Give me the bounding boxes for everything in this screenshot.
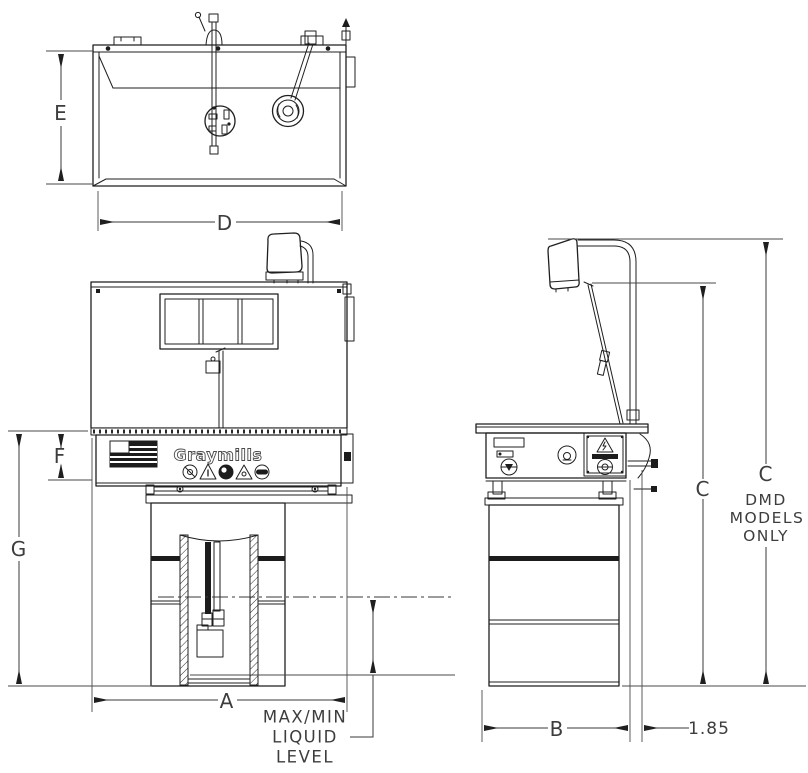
lamp-head-front — [266, 233, 313, 283]
us-flag-label — [110, 441, 157, 467]
dmd-note-line3: ONLY — [743, 527, 789, 545]
dimension-e: E — [46, 51, 93, 184]
lamp-head-side — [548, 239, 579, 292]
gooseneck-arm — [578, 240, 639, 424]
pump — [197, 542, 224, 657]
raised-nozzle — [584, 282, 623, 424]
rim-latch — [114, 37, 141, 45]
dimension-d: D — [98, 191, 342, 235]
front-panel: Graymills — [96, 435, 341, 486]
dim-label-g: G — [11, 537, 28, 561]
dim-label-b: B — [550, 717, 565, 741]
dimension-c: C — [696, 286, 711, 684]
drain-strainer — [205, 106, 235, 136]
brand-logo: Graymills — [174, 446, 263, 465]
dim-label-offset: 1.85 — [688, 719, 730, 739]
side-view: C C DMD MODELS ONLY B 1.85 — [476, 239, 806, 742]
dim-label-c-dmd: C — [759, 462, 774, 486]
dmd-note-line1: DMD — [745, 491, 787, 509]
liquid-note-line1: MAX/MIN — [263, 708, 347, 727]
liquid-level-dimension: MAX/MIN LIQUID LEVEL — [263, 600, 373, 767]
dim-label-c: C — [696, 477, 711, 501]
top-view: E D — [46, 12, 355, 235]
dimension-g: G — [8, 431, 152, 686]
dmd-note-line2: MODELS — [730, 509, 805, 527]
side-bracket — [341, 434, 353, 483]
dim-label-f: F — [54, 444, 67, 468]
liquid-note-line2: LIQUID — [272, 728, 338, 747]
side-cabinet — [486, 433, 658, 492]
dim-label-a: A — [220, 689, 235, 713]
window — [160, 294, 278, 349]
warning-label — [584, 433, 626, 476]
dimension-b: B — [484, 717, 628, 741]
side-deck — [476, 424, 648, 433]
front-view: Graymills — [8, 233, 455, 767]
drawing-canvas: E D — [0, 0, 808, 773]
liquid-note-line3: LEVEL — [276, 748, 334, 767]
pedestal-side — [485, 498, 623, 686]
dim-label-e: E — [54, 101, 68, 125]
dimension-offset: 1.85 — [644, 719, 730, 739]
pedestal-front — [151, 503, 285, 686]
safety-symbols — [183, 464, 269, 480]
dimension-f: F — [48, 434, 92, 480]
tank-rim — [91, 428, 347, 435]
flexible-nozzle-front — [206, 348, 225, 428]
dimension-c-dmd: C DMD MODELS ONLY — [730, 242, 805, 684]
dimensional-drawing: E D — [0, 0, 808, 773]
rim-knob — [342, 18, 350, 45]
dim-label-d: D — [217, 211, 233, 235]
under-frame — [146, 485, 352, 503]
side-frame — [486, 481, 626, 499]
